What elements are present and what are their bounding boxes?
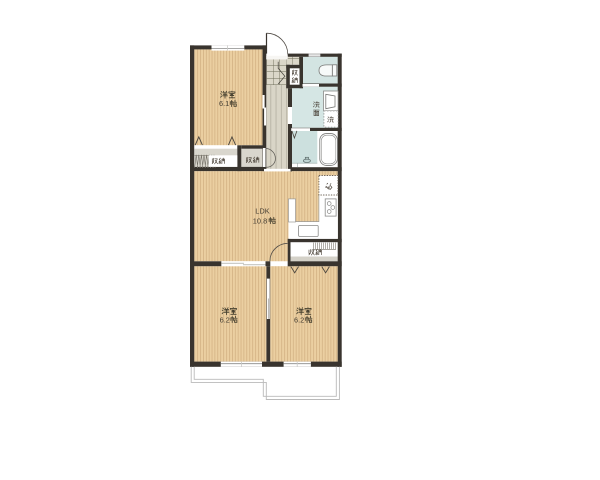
svg-text:6.1: 6.1 [219, 99, 229, 108]
svg-text:6.2: 6.2 [294, 315, 304, 324]
svg-text:10.8: 10.8 [253, 216, 267, 225]
svg-text:LDK: LDK [255, 206, 269, 215]
svg-text:6.2: 6.2 [220, 315, 230, 324]
